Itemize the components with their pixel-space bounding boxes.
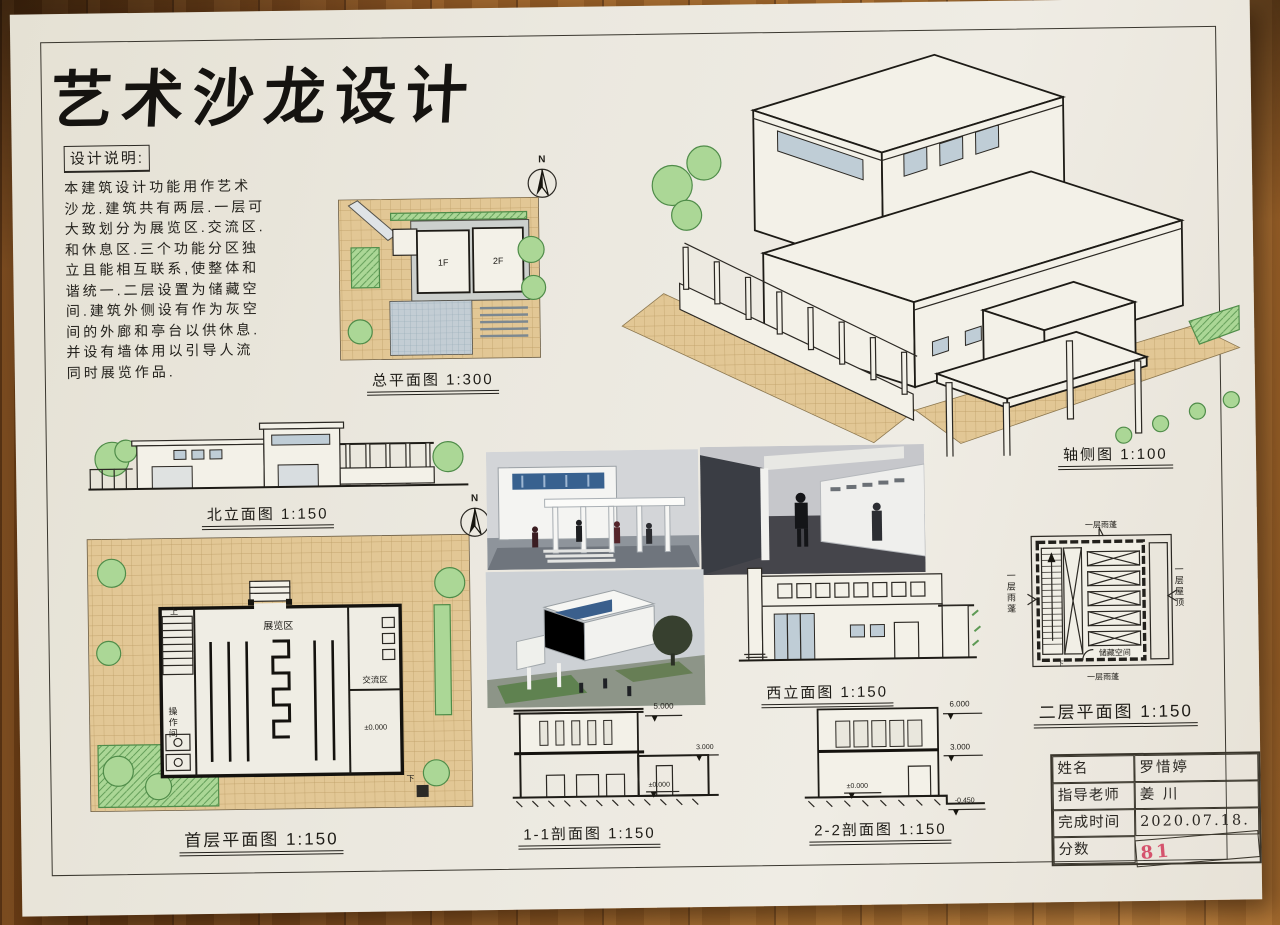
sec1-level-mid: 3.000 <box>696 744 714 751</box>
plan2-down-label: 下 <box>1057 660 1064 668</box>
plan2-roof-right-label: 一层屋顶 <box>1174 564 1185 608</box>
title-block-key-date: 完成时间 <box>1053 809 1135 837</box>
board-title: 艺术沙龙设计 <box>48 44 479 140</box>
render-photo-aerial-image <box>486 569 706 708</box>
second-floor-plan-drawing: 一层雨蓬 一层雨蓬 储藏空间 下 <box>1003 512 1217 691</box>
west-elevation <box>729 547 983 686</box>
sec1-level-ground: ±0.000 <box>649 782 671 789</box>
site-plan-drawing: 1F 2F <box>330 187 547 368</box>
west-elevation-drawing <box>729 547 983 681</box>
design-notes-text: 本建筑设计功能用作艺术 沙龙.建筑共有两层.一层可 大致划分为展览区.交流区. … <box>64 175 291 383</box>
title-block-key-name: 姓名 <box>1052 755 1134 783</box>
plan1-workroom-label: 操作间 <box>167 706 177 739</box>
section-1-1-label: 1-1剖面图 1:150 <box>518 822 661 850</box>
section-1-1-drawing: 5.000 3.000 ±0.000 <box>505 695 725 824</box>
north-letter: N <box>524 155 560 166</box>
site-plan-label: 总平面图 1:300 <box>367 368 499 396</box>
plan1-exhibition-label: 展览区 <box>263 619 293 632</box>
site-1f-label: 1F <box>438 258 449 268</box>
render-photo-entrance <box>486 449 700 575</box>
plan1-up-label: 上 <box>170 607 178 616</box>
title-block-key-score: 分数 <box>1053 836 1135 864</box>
sec1-level-top: 5.000 <box>653 701 674 710</box>
title-block: 姓名 罗惜婷 指导老师 姜 川 完成时间 2020.07.18. 分数 81 <box>1050 751 1262 866</box>
title-block-value-name: 罗惜婷 <box>1134 753 1258 782</box>
drawing-sheet: 艺术沙龙设计 设计说明: 本建筑设计功能用作艺术 沙龙.建筑共有两层.一层可 大… <box>10 0 1262 917</box>
design-notes-title: 设计说明: <box>64 145 151 173</box>
render-photo-aerial <box>486 569 706 713</box>
north-elevation-drawing <box>81 404 474 503</box>
plan1-down-label: 下 <box>406 774 414 783</box>
sec2-level-top: 6.000 <box>949 699 970 708</box>
section-2-2: 6.000 3.000 ±0.000 -0.450 <box>795 691 993 825</box>
plan1-exchange-label: 交流区 <box>362 674 388 684</box>
site-plan: 1F 2F <box>330 187 548 373</box>
ground-floor-plan-drawing: 展览区 交流区 ±0.000 上 下 <box>81 520 483 826</box>
second-floor-plan-label: 二层平面图 1:150 <box>1033 696 1198 728</box>
photo-of-presentation-board: 艺术沙龙设计 设计说明: 本建筑设计功能用作艺术 沙龙.建筑共有两层.一层可 大… <box>0 0 1280 925</box>
sec2-level-ground: ±0.000 <box>847 783 869 790</box>
section-2-2-label: 2-2剖面图 1:150 <box>809 818 952 846</box>
axonometric <box>610 37 1251 466</box>
axonometric-drawing <box>610 37 1251 461</box>
sec2-level-mid: 3.000 <box>950 742 971 751</box>
render-photo-entrance-image <box>486 449 700 570</box>
title-block-key-advisor: 指导老师 <box>1053 782 1135 810</box>
sec2-level-low: -0.450 <box>955 797 975 804</box>
ground-floor-plan-label: 首层平面图 1:150 <box>179 824 344 856</box>
plan1-level-label: ±0.000 <box>364 723 387 732</box>
north-elevation <box>81 404 474 508</box>
plan2-canopy-bottom-label: 一层雨蓬 <box>1087 671 1119 681</box>
plan2-storage-label: 储藏空间 <box>1099 647 1131 657</box>
section-1-1: 5.000 3.000 ±0.000 <box>505 695 725 829</box>
axonometric-label: 轴侧图 1:100 <box>1058 443 1173 471</box>
ground-floor-plan: 展览区 交流区 ±0.000 上 下 操作间 <box>81 520 483 831</box>
second-floor-plan: 一层雨蓬 一层雨蓬 储藏空间 下 一层雨蓬 一层屋顶 <box>1003 512 1218 696</box>
section-2-2-drawing: 6.000 3.000 ±0.000 -0.450 <box>795 691 993 820</box>
design-notes: 设计说明: 本建筑设计功能用作艺术 沙龙.建筑共有两层.一层可 大致划分为展览区… <box>64 143 291 383</box>
plan2-canopy-left-label: 一层雨蓬 <box>1006 571 1017 615</box>
site-2f-label: 2F <box>493 256 504 266</box>
title-block-value-advisor: 姜 川 <box>1135 780 1259 809</box>
plan2-canopy-top-label: 一层雨蓬 <box>1085 519 1117 529</box>
